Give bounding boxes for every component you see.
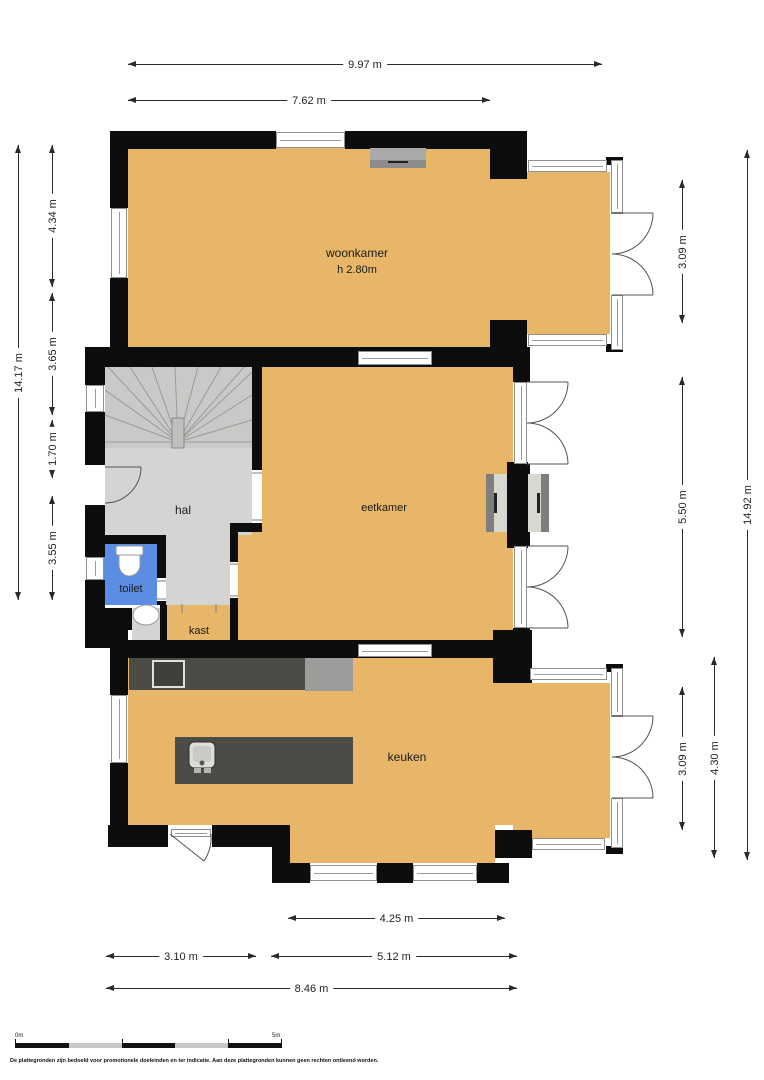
dim-label: 9.97 m [343, 59, 387, 71]
chimney-wall [507, 462, 528, 548]
dim-left-keuken: 3.55 m [52, 496, 53, 600]
wall-segment [230, 523, 262, 532]
dim-label: 3.55 m [47, 526, 59, 570]
scale-tick [281, 1039, 282, 1043]
dim-left-woonkamer: 4.34 m [52, 145, 53, 287]
dim-bottom-total: 8.46 m [106, 988, 517, 989]
dim-right-woonkamer: 3.09 m [682, 180, 683, 323]
wall-segment [103, 535, 163, 544]
dim-top-total: 9.97 m [128, 64, 602, 65]
dim-left-total: 14.17 m [18, 145, 19, 600]
room-hal-corridor-floor [166, 535, 230, 605]
tv-unit [370, 148, 426, 168]
window [611, 668, 623, 716]
wall-segment [160, 605, 167, 640]
stairs-area [105, 367, 252, 448]
wall-segment [490, 131, 527, 179]
wall-segment [110, 763, 128, 830]
dim-left-toilet: 1.70 m [52, 420, 53, 478]
wall-segment [377, 863, 413, 883]
dim-bottom-mid: 5.12 m [271, 956, 517, 957]
wall-segment [110, 658, 128, 695]
dim-left-hal: 3.65 m [52, 293, 53, 415]
dim-label: 8.46 m [290, 983, 334, 995]
wall-segment [85, 580, 105, 608]
scale-segment [175, 1043, 228, 1048]
wall-segment [477, 863, 509, 883]
room-label-toilet: toilet [119, 583, 142, 595]
room-woonkamer-floor [128, 148, 513, 350]
wall-segment [493, 630, 532, 683]
door-opening [252, 470, 262, 523]
room-woonkamer-serre-floor [513, 178, 527, 320]
wall-segment [110, 131, 276, 149]
dim-right-keuken: 3.09 m [682, 687, 683, 830]
room-label-woonkamer: woonkamer [326, 246, 388, 260]
scale-segment [69, 1043, 122, 1048]
door-opening [230, 562, 238, 598]
window [86, 385, 104, 412]
kitchen-island [175, 737, 353, 784]
door-opening [611, 716, 623, 800]
scale-end-label: 5m [272, 1033, 280, 1039]
wall-segment [85, 505, 105, 557]
eetkamer-french-doors-lower [527, 546, 568, 628]
dim-label: 4.25 m [375, 913, 419, 925]
chimney-line [494, 493, 497, 513]
dim-label: 1.70 m [47, 427, 59, 471]
chimney-block-inner [486, 474, 507, 532]
room-keuken-serre-floor [513, 683, 610, 838]
dim-label: 14.92 m [742, 480, 754, 530]
scale-tick [122, 1039, 123, 1043]
dim-label: 3.65 m [47, 332, 59, 376]
dim-label: 14.17 m [13, 348, 25, 398]
window [611, 798, 623, 848]
toilet-door-opening [157, 578, 166, 601]
dim-label: 3.10 m [159, 951, 203, 963]
wall-segment [513, 350, 530, 382]
scale-segment [228, 1043, 282, 1048]
scale-start-label: 0m [15, 1033, 23, 1039]
dim-label: 4.34 m [47, 194, 59, 238]
window [310, 865, 377, 881]
dim-bottom-keuken: 4.25 m [288, 918, 505, 919]
wall-segment [110, 278, 128, 348]
room-toilet-floor [104, 544, 157, 605]
dim-bottom-left: 3.10 m [106, 956, 256, 957]
dim-right-keuken-total: 4.30 m [714, 657, 715, 858]
fridge [305, 658, 353, 691]
window [530, 668, 607, 680]
dim-label: 4.30 m [709, 736, 721, 780]
scale-segment [122, 1043, 175, 1048]
dim-label: 3.09 m [677, 737, 689, 781]
room-label-woonkamer-height: h 2.80m [337, 264, 377, 276]
wall-segment [85, 347, 530, 367]
window [532, 838, 605, 850]
window [276, 132, 345, 148]
room-label-hal: hal [175, 503, 191, 517]
wall-segment [110, 149, 128, 208]
dim-label: 7.62 m [287, 95, 331, 107]
front-door-opening [85, 465, 105, 505]
scale-tick [228, 1039, 229, 1043]
interior-window [358, 644, 432, 657]
scale-segment [15, 1043, 69, 1048]
stove [152, 660, 185, 688]
dim-right-total: 14.92 m [747, 150, 748, 860]
dim-right-eetkamer: 5.50 m [682, 377, 683, 637]
window [528, 160, 607, 172]
room-hal-floor [132, 608, 160, 640]
room-label-eetkamer: eetkamer [361, 502, 407, 514]
dim-top-woonkamer: 7.62 m [128, 100, 490, 101]
wall-segment [272, 843, 290, 883]
wall-segment [230, 532, 238, 562]
french-door-frame [514, 546, 527, 628]
window [111, 695, 127, 763]
room-label-keuken: keuken [388, 750, 427, 764]
wall-segment [495, 830, 532, 858]
floorplan-canvas: woonkamer h 2.80m eetkamer hal toilet ka… [0, 0, 764, 1080]
window [611, 160, 623, 213]
dim-label: 5.12 m [372, 951, 416, 963]
interior-window [358, 351, 432, 365]
room-keuken-floor [290, 825, 495, 863]
room-eetkamer-floor [238, 532, 262, 643]
window [611, 295, 623, 350]
window [413, 865, 477, 881]
wall-segment [85, 367, 105, 385]
disclaimer-text: De plattegronden zijn bedoeld voor promo… [10, 1058, 378, 1064]
room-woonkamer-serre-floor [527, 172, 610, 334]
wall-segment [85, 608, 132, 630]
wall-segment [110, 640, 513, 658]
wall-segment [290, 863, 310, 883]
french-door-frame [514, 382, 527, 464]
wall-segment [230, 598, 238, 640]
eetkamer-french-doors-upper [527, 382, 568, 464]
window [111, 208, 127, 278]
window [528, 334, 607, 346]
room-label-kast: kast [189, 625, 209, 637]
dim-label: 5.50 m [677, 485, 689, 529]
window [86, 557, 104, 580]
wall-segment [252, 367, 262, 470]
dim-label: 3.09 m [677, 230, 689, 274]
wall-segment [108, 825, 168, 847]
wall-segment [157, 535, 166, 578]
wall-segment [85, 412, 105, 465]
chimney-block-outer [528, 474, 549, 532]
door-opening [611, 213, 623, 297]
tv-screen-line [388, 161, 408, 163]
back-door-threshold [171, 829, 211, 837]
scale-tick [15, 1039, 16, 1043]
chimney-line [537, 493, 540, 513]
